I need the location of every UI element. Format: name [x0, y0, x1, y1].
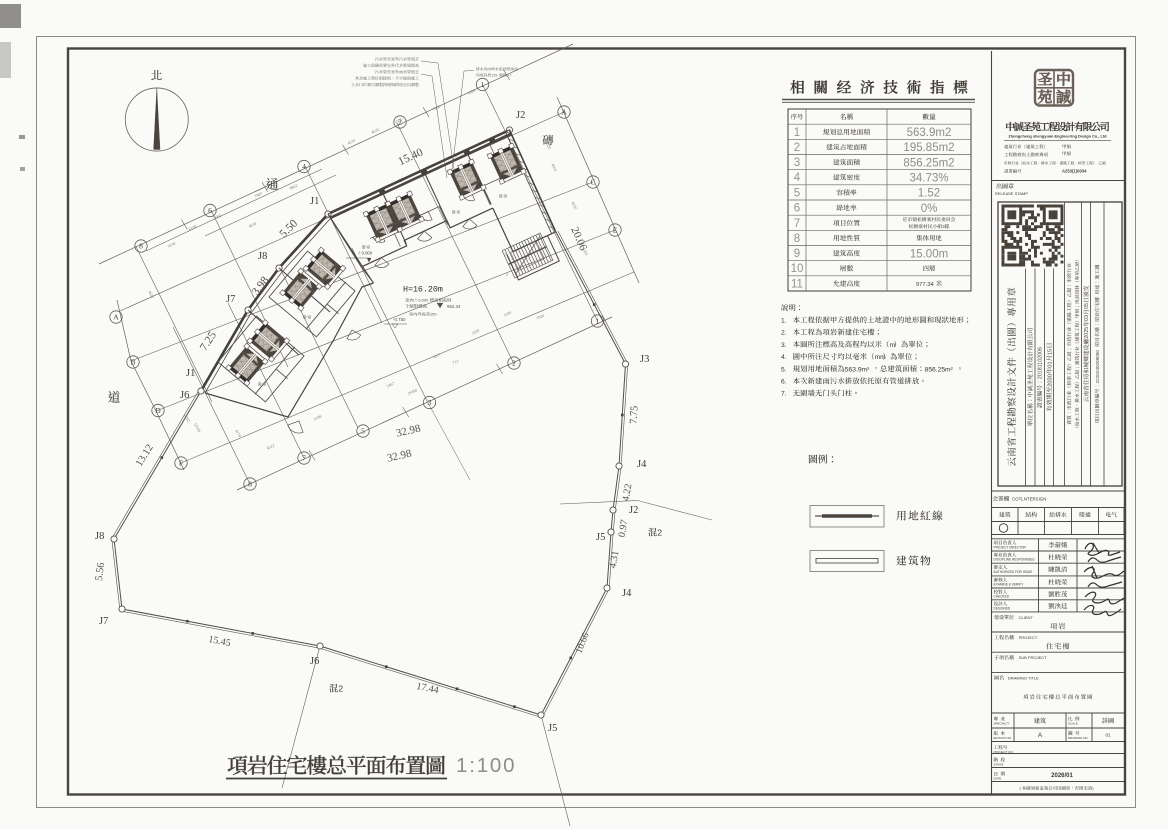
svg-text:03: 03 — [1084, 315, 1090, 321]
svg-text:DESIGNED: DESIGNED — [994, 606, 1011, 610]
svg-text:977.34: 977.34 — [916, 282, 935, 288]
svg-text:2: 2 — [512, 359, 516, 368]
svg-text:563.9m2: 563.9m2 — [907, 127, 952, 139]
svg-text:8: 8 — [248, 480, 252, 489]
svg-text:9: 9 — [794, 248, 800, 260]
svg-text:195.85m2: 195.85m2 — [903, 142, 954, 154]
svg-text:20181102006: 20181102006 — [1038, 347, 1044, 379]
svg-text:J2: J2 — [629, 505, 638, 516]
svg-text:A253(1)0034: A253(1)0034 — [1062, 169, 1087, 174]
svg-text:J5: J5 — [596, 532, 605, 543]
svg-text:m: m — [890, 342, 896, 349]
svg-text:1.52: 1.52 — [918, 188, 940, 200]
svg-text:5.: 5. — [781, 366, 787, 373]
svg-text:2: 2 — [338, 684, 343, 694]
svg-text:2.: 2. — [781, 330, 787, 337]
svg-text:DATE: DATE — [994, 777, 1002, 781]
svg-text:2030: 2030 — [1047, 374, 1053, 387]
svg-text:4: 4 — [302, 162, 306, 171]
svg-text:J1: J1 — [310, 196, 319, 207]
svg-text:6: 6 — [794, 203, 800, 215]
svg-text:2220240209050: 2220240209050 — [1095, 350, 1100, 384]
svg-text:1.: 1. — [781, 318, 787, 325]
svg-text:J7: J7 — [226, 294, 235, 305]
svg-text:7: 7 — [504, 253, 506, 257]
svg-text:1: 1 — [481, 80, 485, 89]
svg-text:962.34: 962.34 — [447, 304, 461, 309]
svg-text:J4: J4 — [637, 459, 647, 470]
svg-text:10: 10 — [791, 263, 804, 275]
svg-text:7: 7 — [302, 454, 306, 463]
svg-text:8: 8 — [794, 233, 800, 245]
svg-text:0%: 0% — [921, 203, 938, 215]
svg-text:2: 2 — [506, 273, 508, 277]
svg-text:RELEASE STAMP: RELEASE STAMP — [995, 191, 1028, 196]
svg-text:4.: 4. — [781, 354, 787, 361]
svg-text:STAGE: STAGE — [994, 763, 1004, 767]
svg-text:J4: J4 — [622, 588, 632, 599]
svg-text:11: 11 — [791, 278, 803, 290]
svg-text:5: 5 — [361, 427, 365, 436]
svg-text:C: C — [590, 178, 595, 187]
svg-text:8: 8 — [139, 242, 143, 251]
svg-text:EDITION NO.: EDITION NO. — [994, 736, 1013, 740]
svg-text:E: E — [613, 226, 618, 235]
svg-text:15.00m: 15.00m — [910, 248, 948, 260]
svg-text:-0.750: -0.750 — [393, 317, 406, 322]
svg-text:SCALE: SCALE — [1068, 722, 1078, 726]
svg-text:1:100: 1:100 — [456, 754, 516, 777]
svg-text:15: 15 — [1047, 349, 1053, 355]
svg-text:D: D — [155, 406, 161, 415]
svg-text:PROJECT NO.: PROJECT NO. — [994, 750, 1014, 754]
svg-text:3.: 3. — [781, 342, 787, 349]
svg-text:DRAWING TITLE: DRAWING TITLE — [1008, 675, 1039, 680]
svg-text:4: 4 — [794, 172, 801, 184]
svg-text:A: A — [1038, 732, 1043, 739]
svg-text:AUTHORIZED FOR ISSUE: AUTHORIZED FOR ISSUE — [994, 570, 1033, 574]
svg-text:7: 7 — [794, 218, 800, 230]
svg-text:2: 2 — [657, 528, 662, 538]
svg-text:05: 05 — [1084, 303, 1090, 309]
svg-text:01: 01 — [1105, 733, 1111, 738]
svg-text:J2: J2 — [516, 110, 525, 121]
svg-text:H=16.20m: H=16.20m — [403, 285, 443, 294]
svg-text:F: F — [179, 459, 183, 468]
svg-text:3: 3 — [794, 157, 800, 169]
svg-text:CHECKED: CHECKED — [994, 595, 1010, 599]
svg-text:2025: 2025 — [1084, 327, 1090, 339]
svg-text:PROJECT: PROJECT — [1019, 635, 1038, 640]
svg-text:563.9m²: 563.9m² — [845, 366, 870, 373]
svg-text:DRAWING NO.: DRAWING NO. — [1068, 736, 1089, 740]
svg-text:856.25m2: 856.25m2 — [903, 157, 954, 169]
svg-text:150: 150 — [430, 312, 437, 317]
svg-text:B: B — [130, 358, 135, 367]
svg-text:J5: J5 — [548, 723, 557, 734]
svg-text:3: 3 — [428, 398, 432, 407]
svg-text:DISCIPLINE RESPONSIBLE: DISCIPLINE RESPONSIBLE — [994, 558, 1035, 562]
svg-text:Zhongcheng shengyuan Engineeri: Zhongcheng shengyuan Engineering Design … — [1008, 134, 1107, 139]
svg-text:0.7: 0.7 — [507, 73, 512, 77]
svg-text:J6: J6 — [310, 656, 319, 667]
svg-text:SPECIALTY: SPECIALTY — [994, 722, 1010, 726]
svg-text:A: A — [561, 108, 567, 117]
svg-text:7.: 7. — [781, 391, 787, 398]
svg-text:6: 6 — [208, 206, 212, 215]
svg-text:J3: J3 — [640, 354, 649, 365]
svg-text:J8: J8 — [258, 251, 267, 262]
svg-text:J6: J6 — [180, 390, 189, 401]
svg-text:COTLNTERSIGN: COTLNTERSIGN — [1012, 497, 1046, 502]
svg-text:2026/01: 2026/01 — [1051, 773, 1073, 779]
svg-text:CLIENT: CLIENT — [1019, 615, 1034, 620]
svg-text:J7: J7 — [99, 616, 108, 627]
svg-text:0.000: 0.000 — [362, 251, 373, 256]
svg-text:1: 1 — [794, 127, 800, 139]
svg-text:34.73%: 34.73% — [909, 172, 948, 184]
svg-text:A: A — [113, 313, 119, 322]
svg-text:5: 5 — [794, 187, 800, 199]
svg-text:7.75: 7.75 — [629, 405, 641, 424]
svg-text:1: 1 — [596, 317, 600, 326]
svg-text:J1: J1 — [186, 368, 195, 379]
svg-text:6.: 6. — [781, 379, 787, 386]
svg-text:125·: 125· — [491, 73, 498, 77]
svg-text:EXAMINE & VERIFY: EXAMINE & VERIFY — [994, 583, 1025, 587]
svg-text:5.56: 5.56 — [94, 562, 107, 582]
svg-text:856.25m²: 856.25m² — [925, 366, 954, 373]
svg-text:01: 01 — [1047, 361, 1053, 367]
svg-text:J8: J8 — [95, 531, 104, 542]
svg-text:SUB PROJECT: SUB PROJECT — [1019, 655, 1048, 660]
svg-text:2: 2 — [794, 142, 800, 154]
svg-text:0.000: 0.000 — [418, 298, 429, 303]
svg-text:PROJECT DIRECTOR: PROJECT DIRECTOR — [994, 545, 1027, 549]
